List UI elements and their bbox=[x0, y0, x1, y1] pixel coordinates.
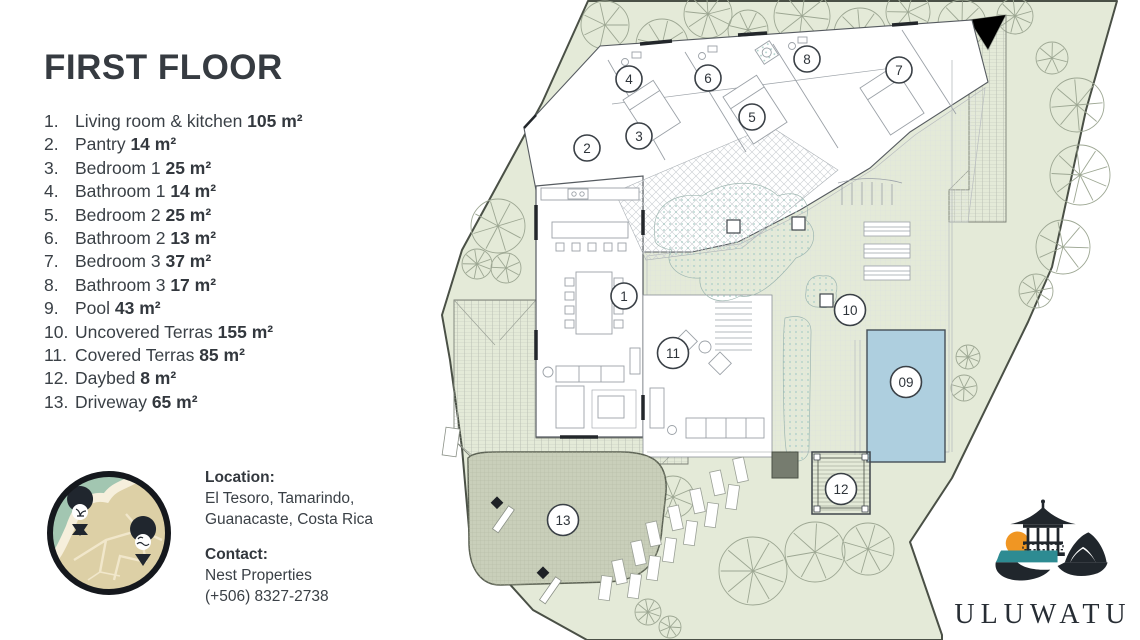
legend-item-12: 12.Daybed 8 m² bbox=[44, 367, 434, 390]
plan-badge-7: 7 bbox=[886, 57, 912, 83]
svg-text:6: 6 bbox=[704, 71, 712, 86]
plan-badge-11: 11 bbox=[658, 338, 689, 369]
legend-item-8: 8.Bathroom 3 17 m² bbox=[44, 274, 434, 297]
svg-text:5: 5 bbox=[748, 110, 756, 125]
legend-item-3: 3.Bedroom 1 25 m² bbox=[44, 157, 434, 180]
contact-name: Nest Properties bbox=[205, 565, 373, 586]
legend-item-7: 7.Bedroom 3 37 m² bbox=[44, 250, 434, 273]
plan-badge-8: 8 bbox=[794, 46, 820, 72]
room-legend: 1.Living room & kitchen 105 m²2.Pantry 1… bbox=[44, 110, 434, 414]
legend-item-9: 9.Pool 43 m² bbox=[44, 297, 434, 320]
plan-badge-1: 1 bbox=[611, 283, 637, 309]
info-panel: Location: El Tesoro, Tamarindo, Guanacas… bbox=[205, 467, 373, 607]
utility-box bbox=[772, 452, 798, 478]
brand-logo-icon bbox=[963, 496, 1123, 596]
location-line1: El Tesoro, Tamarindo, bbox=[205, 488, 373, 509]
plan-badge-6: 6 bbox=[695, 65, 721, 91]
legend-item-10: 10.Uncovered Terras 155 m² bbox=[44, 321, 434, 344]
plan-badge-2: 2 bbox=[574, 135, 600, 161]
map-circle bbox=[44, 468, 174, 598]
legend-item-11: 11.Covered Terras 85 m² bbox=[44, 344, 434, 367]
brand-logo: ULUWATU bbox=[948, 496, 1138, 631]
svg-text:12: 12 bbox=[833, 482, 848, 497]
plan-badge-10: 10 bbox=[835, 295, 866, 326]
legend-item-4: 4.Bathroom 1 14 m² bbox=[44, 180, 434, 203]
legend-item-1: 1.Living room & kitchen 105 m² bbox=[44, 110, 434, 133]
legend-item-13: 13.Driveway 65 m² bbox=[44, 391, 434, 414]
svg-text:4: 4 bbox=[625, 72, 633, 87]
location-line2: Guanacaste, Costa Rica bbox=[205, 509, 373, 530]
legend-item-6: 6.Bathroom 2 13 m² bbox=[44, 227, 434, 250]
logo-water bbox=[996, 551, 1058, 563]
contact-label: Contact: bbox=[205, 544, 373, 565]
plan-badge-5: 5 bbox=[739, 104, 765, 130]
legend-item-5: 5.Bedroom 2 25 m² bbox=[44, 204, 434, 227]
plan-badge-09: 09 bbox=[891, 367, 922, 398]
floorplan-poster: FIRST FLOOR 1.Living room & kitchen 105 … bbox=[0, 0, 1140, 640]
location-label: Location: bbox=[205, 467, 373, 488]
svg-text:13: 13 bbox=[555, 513, 570, 528]
svg-text:1: 1 bbox=[620, 289, 628, 304]
svg-text:10: 10 bbox=[842, 303, 857, 318]
location-map bbox=[44, 468, 174, 598]
brand-name: ULUWATU bbox=[948, 599, 1138, 631]
plan-badge-13: 13 bbox=[548, 505, 579, 536]
plan-badge-12: 12 bbox=[826, 474, 857, 505]
svg-text:3: 3 bbox=[635, 129, 643, 144]
svg-text:2: 2 bbox=[583, 141, 591, 156]
contact-phone: (+506) 8327-2738 bbox=[205, 586, 373, 607]
svg-text:7: 7 bbox=[895, 63, 903, 78]
plan-badge-4: 4 bbox=[616, 66, 642, 92]
plan-badge-3: 3 bbox=[626, 123, 652, 149]
page-title: FIRST FLOOR bbox=[44, 48, 283, 88]
legend-item-2: 2.Pantry 14 m² bbox=[44, 133, 434, 156]
svg-text:8: 8 bbox=[803, 52, 811, 67]
svg-text:11: 11 bbox=[666, 346, 680, 361]
svg-text:09: 09 bbox=[898, 375, 913, 390]
